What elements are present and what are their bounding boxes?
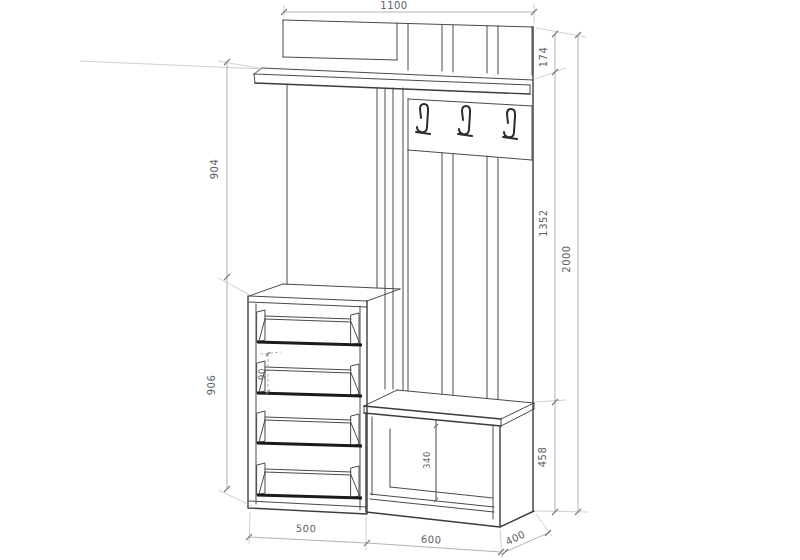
dim-bench-section-height: 458 — [537, 447, 548, 468]
dim-bench-width: 600 — [421, 533, 442, 545]
dim-cabinet-section-height: 906 — [206, 375, 217, 396]
hook-rail — [408, 99, 532, 160]
shoe-cabinet — [248, 284, 400, 514]
bench-frame — [364, 390, 534, 519]
coat-hook-icon — [503, 109, 517, 139]
back-panel — [283, 20, 533, 511]
technical-drawing: 1100 174 1352 2000 458 904 906 500 600 4… — [0, 0, 800, 560]
dim-unit-depth: 400 — [504, 528, 527, 547]
dimension-labels: 1100 174 1352 2000 458 904 906 500 600 4… — [206, 0, 572, 547]
dim-shelf-side-height: 90 — [257, 368, 267, 380]
coat-hook-icon — [458, 106, 472, 136]
wall-guide-line — [80, 61, 262, 69]
cabinet-outer-edges — [248, 296, 367, 514]
dim-hook-section-height: 1352 — [538, 209, 549, 236]
dim-upper-section-height: 904 — [209, 159, 220, 180]
dim-overall-width: 1100 — [380, 0, 407, 11]
coat-hook-icon — [416, 104, 430, 134]
drawer-shelf — [257, 310, 360, 498]
dim-top-panel-height: 174 — [538, 47, 549, 68]
drawing-canvas: 1100 174 1352 2000 458 904 906 500 600 4… — [0, 0, 800, 560]
dim-cabinet-width: 500 — [296, 523, 317, 535]
dim-overall-height: 2000 — [561, 245, 572, 272]
tall-panel — [287, 84, 377, 288]
dim-bench-opening-height: 340 — [422, 451, 432, 469]
bench — [364, 390, 534, 527]
